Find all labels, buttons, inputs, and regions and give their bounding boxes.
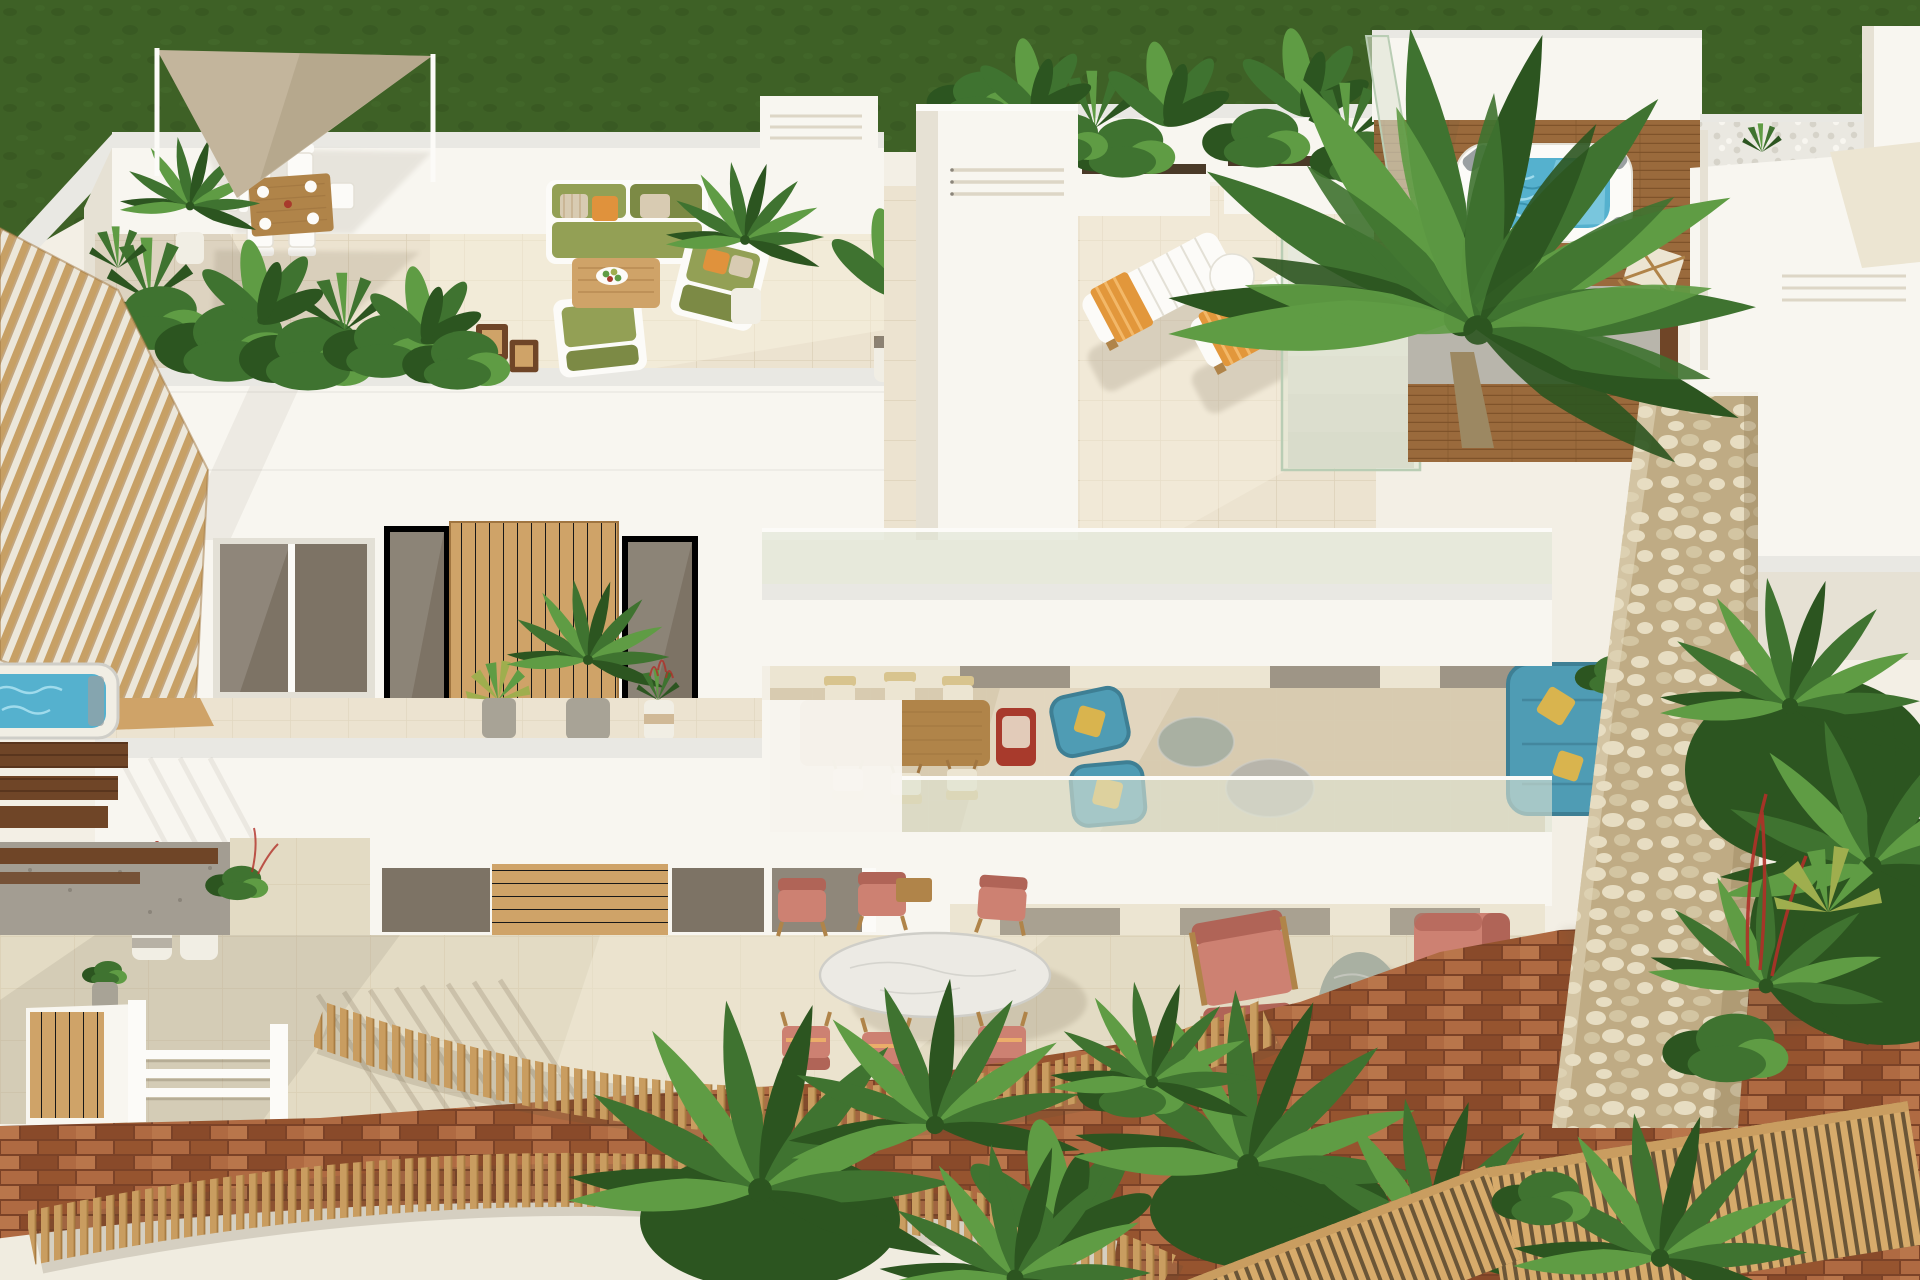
small-side-table xyxy=(896,878,932,902)
rendering-canvas xyxy=(0,0,1920,1280)
glass-balustrade-lower xyxy=(900,776,1552,832)
villa-aerial-rendering xyxy=(0,0,1920,1280)
chimney-volume xyxy=(916,104,1078,540)
terrace-coping xyxy=(762,584,1552,600)
second-floor-terrace-right xyxy=(762,528,1648,906)
window-middle xyxy=(384,526,450,712)
plunge-pool xyxy=(0,664,118,738)
lantern-table-2 xyxy=(510,340,539,372)
dining-table xyxy=(248,173,334,237)
red-chair xyxy=(996,708,1036,766)
balcony-coping xyxy=(95,738,762,758)
wood-coffee-table xyxy=(572,258,660,308)
green-sofa xyxy=(546,180,708,264)
terrace-slab-face xyxy=(762,600,1552,666)
wood-gate xyxy=(30,1012,104,1118)
window-left xyxy=(213,538,375,698)
right-white-volumes xyxy=(1690,130,1920,392)
wood-shutter-panel xyxy=(450,522,618,712)
glass-balustrade-upper xyxy=(762,528,1552,584)
pink-armchair-1 xyxy=(1190,909,1295,1008)
vent-box-small xyxy=(760,96,878,148)
